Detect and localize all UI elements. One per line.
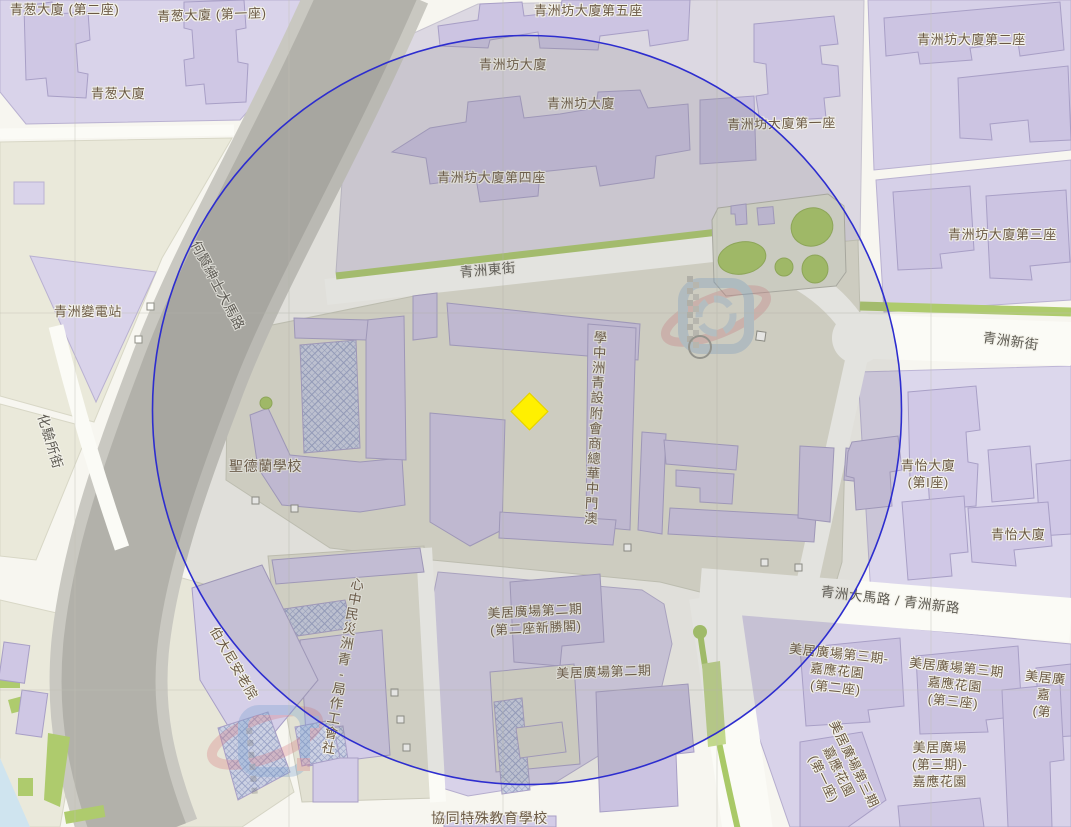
label-line: 嘉應花園 [913, 774, 967, 789]
label-line: (第二座新勝閣) [490, 618, 582, 638]
building-label: 青洲坊大廈第一座 [727, 115, 836, 134]
label-line: 美居廣場 [913, 740, 967, 755]
building-label: 青葱大廈 [91, 86, 145, 103]
label-line: (第I座) [908, 475, 949, 490]
building-label: 美居廣 嘉 (第 [1021, 668, 1067, 723]
label-line: (第二座) [809, 677, 861, 697]
label-line: (第三座) [927, 691, 979, 711]
street-junction [832, 312, 884, 364]
label-line: 嘉 [1036, 686, 1051, 702]
building-label: 美居廣場第三期 嘉應花園 (第三座) [905, 655, 1005, 715]
building-label: 青洲坊大廈第五座 [534, 3, 643, 20]
label-line: 美居廣 [1024, 668, 1066, 687]
label-line: 青怡大廈 [901, 458, 955, 473]
building-label: 青洲變電站 [54, 304, 122, 321]
building-label: 美居廣場第二期 [556, 663, 652, 683]
building-label: 青怡大廈 [991, 527, 1045, 544]
building-label: 青洲坊大廈第四座 [437, 170, 546, 187]
building-label: 美居廣場第二期 (第二座新勝閣) [487, 601, 584, 640]
building-label: 青洲坊大廈第三座 [948, 227, 1057, 244]
building-label: 青葱大廈 (第二座) [10, 2, 119, 19]
building-label: 美居廣場第三期- 嘉應花園 (第二座) [785, 641, 890, 702]
building-label: 青洲坊大廈 [547, 96, 615, 113]
building-label: 青怡大廈 (第I座) [901, 458, 955, 492]
building-label: 青洲坊大廈 [479, 57, 547, 74]
building-label: 聖德蘭學校 [229, 457, 302, 475]
building-label: 協同特殊教育學校 [431, 809, 548, 827]
label-line: (第 [1032, 703, 1052, 720]
label-line: (第三期)- [912, 757, 968, 772]
map-canvas[interactable]: 青葱大廈 (第二座) 青葱大廈 (第一座) 青葱大廈 青洲坊大廈第五座 青洲坊大… [0, 0, 1071, 827]
building-label: 青洲坊大廈第二座 [917, 32, 1026, 49]
building-label: 美居廣場 (第三期)- 嘉應花園 [912, 740, 968, 791]
